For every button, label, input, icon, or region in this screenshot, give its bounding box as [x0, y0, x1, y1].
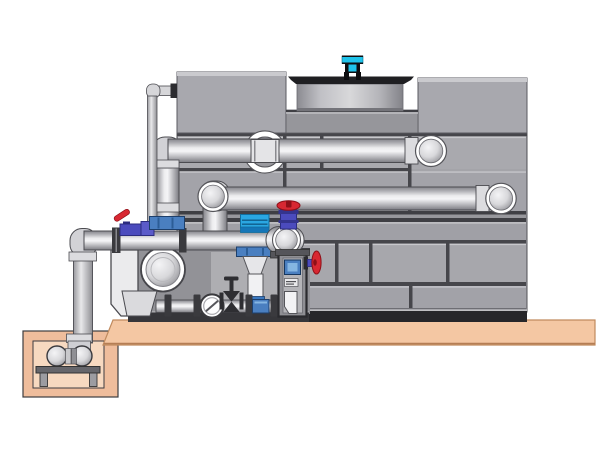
manifold-flange-2 [179, 228, 187, 253]
makeup-pipe-flange [171, 84, 178, 99]
strainer-cap [241, 215, 270, 233]
gate-valve-handle [224, 277, 239, 281]
return-pipe-left-elbow [202, 185, 225, 208]
makeup-pipe-vertical [148, 96, 158, 223]
illustration-canvas [0, 0, 600, 450]
cooling-tower-diagram [0, 0, 600, 450]
supply-pipe-horizontal [168, 139, 408, 163]
pump-motor-end [47, 346, 67, 366]
tee-flange [150, 217, 185, 230]
discharge-elbow-dome [276, 229, 298, 251]
return-pipe-horizontal [218, 187, 478, 210]
right-plenum-box [418, 78, 527, 133]
lever-valve-handle [113, 208, 130, 222]
pump-shelf [36, 367, 100, 374]
concrete-pad [103, 320, 595, 345]
fan-shroud-cylinder [297, 84, 403, 111]
lever-valve-body [120, 224, 141, 236]
left-plenum-box [177, 72, 286, 133]
column-label [285, 279, 299, 287]
fan-motor [342, 56, 363, 81]
return-pipe-end-elbow [489, 187, 512, 210]
column-drain-elbow [285, 292, 298, 314]
tower-top-structure [177, 56, 527, 134]
inline-pump-flange [237, 247, 274, 257]
fan-deck-plate [288, 77, 414, 85]
riser-vertical [74, 252, 93, 343]
supply-pipe-end-elbow [419, 139, 443, 163]
